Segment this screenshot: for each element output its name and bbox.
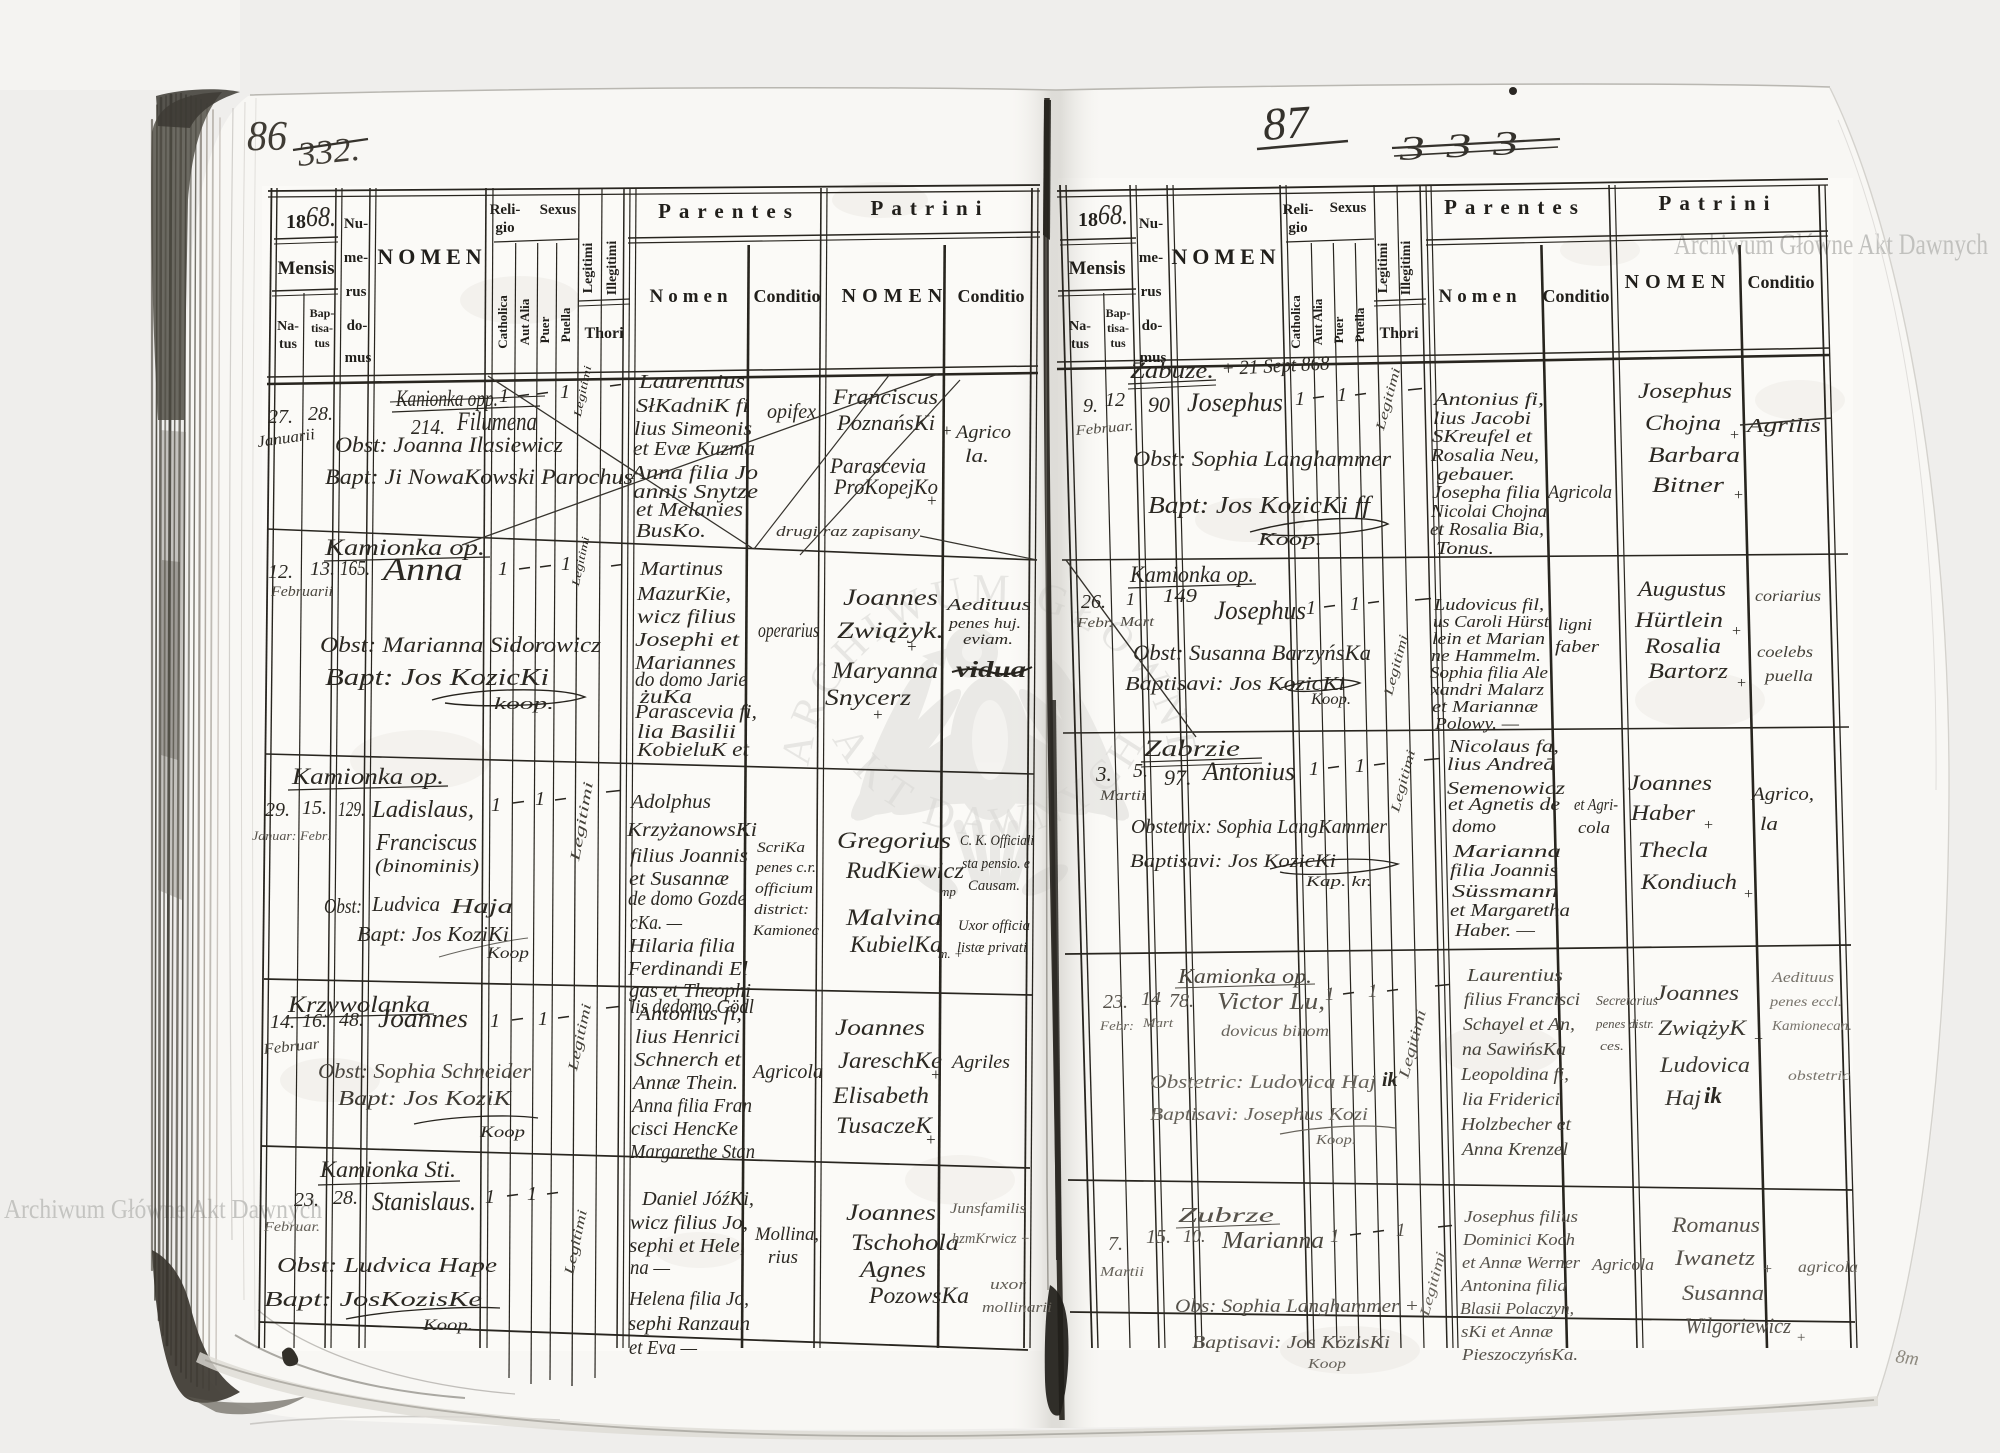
svg-text:Agricola: Agricola [751, 1061, 823, 1083]
svg-text:wicz filius Jo,: wicz filius Jo, [630, 1212, 748, 1234]
svg-text:Thecla: Thecla [1638, 837, 1708, 862]
svg-text:1: 1 [1355, 755, 1365, 777]
svg-text:Koop: Koop [1307, 1357, 1346, 1372]
svg-text:Adolphus: Adolphus [629, 791, 711, 813]
svg-text:KrzyżanowsKi: KrzyżanowsKi [626, 819, 757, 841]
svg-text:Reli-: Reli- [490, 202, 521, 218]
svg-text:domo: domo [1452, 816, 1496, 836]
svg-text:18: 18 [286, 211, 306, 233]
svg-text:Schnerch et: Schnerch et [634, 1049, 742, 1071]
svg-text:Puella: Puella [1352, 307, 1367, 342]
svg-text:ScriKa: ScriKa [757, 840, 805, 856]
svg-text:Puer: Puer [537, 316, 552, 343]
svg-text:+: + [941, 421, 952, 440]
svg-text:Haber. —: Haber. — [1454, 920, 1536, 940]
svg-text:cisci HencKe: cisci HencKe [631, 1118, 738, 1140]
svg-text:ligni: ligni [1558, 615, 1592, 634]
svg-text:Marianna: Marianna [1452, 841, 1562, 861]
svg-text:Antonius fi,: Antonius fi, [635, 1003, 742, 1025]
svg-text:1: 1 [1337, 384, 1347, 406]
svg-text:KobieluK et: KobieluK et [636, 739, 750, 761]
svg-text:lia Friderici: lia Friderici [1462, 1089, 1560, 1109]
svg-text:Antonius: Antonius [1201, 757, 1295, 786]
svg-text:ik: ik [1382, 1069, 1398, 1091]
svg-text:Mollina,: Mollina, [754, 1224, 819, 1245]
svg-text:Bap-: Bap- [1106, 306, 1131, 320]
svg-text:+: + [930, 1065, 941, 1084]
svg-text:Holzbecher et: Holzbecher et [1460, 1114, 1572, 1134]
svg-text:Puella: Puella [558, 307, 573, 342]
svg-text:Illegitimi: Illegitimi [1399, 241, 1414, 296]
svg-text:NOMEN: NOMEN [1171, 244, 1280, 269]
svg-text:Koop.: Koop. [1257, 529, 1322, 549]
svg-text:1: 1 [1330, 1226, 1340, 1247]
svg-text:Aedituus: Aedituus [1771, 970, 1834, 986]
svg-text:penes eccl.: penes eccl. [1769, 995, 1842, 1010]
svg-text:Conditio: Conditio [1542, 286, 1609, 306]
svg-text:Ferdinandi El: Ferdinandi El [627, 958, 749, 980]
svg-text:RudKiewicz: RudKiewicz [845, 858, 964, 883]
svg-text:ik: ik [1704, 1083, 1722, 1108]
svg-text:Patrini: Patrini [871, 196, 990, 220]
svg-text:Dominici Koch: Dominici Koch [1462, 1230, 1575, 1249]
svg-text:Mensis: Mensis [1069, 258, 1126, 279]
svg-text:90: 90 [1148, 392, 1170, 417]
svg-text:Januar: Febr:: Januar: Febr: [252, 828, 332, 843]
svg-text:Bapt: Jos KoziK: Bapt: Jos KoziK [338, 1086, 512, 1110]
svg-text:Thori: Thori [584, 325, 624, 342]
svg-text:Bapt: Jos KoziKi: Bapt: Jos KoziKi [357, 922, 509, 946]
svg-text:Anna filia Fran: Anna filia Fran [630, 1095, 752, 1117]
svg-text:hzmKrwicz +: hzmKrwicz + [952, 1231, 1030, 1247]
svg-text:Daniel JóźKi,: Daniel JóźKi, [641, 1188, 754, 1210]
svg-text:Anna: Anna [381, 552, 463, 588]
svg-text:Parascevia fi,: Parascevia fi, [634, 701, 757, 723]
svg-text:et Rosalia Bia,: et Rosalia Bia, [1430, 519, 1544, 539]
svg-text:Agrico: Agrico [954, 422, 1011, 443]
svg-text:na SawińsKa: na SawińsKa [1462, 1039, 1566, 1059]
svg-text:15.: 15. [1146, 1226, 1171, 1248]
svg-text:Puer: Puer [1331, 316, 1346, 343]
svg-text:PieszoczyńsKa.: PieszoczyńsKa. [1461, 1345, 1578, 1364]
svg-text:Parochus: Parochus [540, 464, 633, 489]
svg-text:Helena filia Jo,: Helena filia Jo, [628, 1288, 749, 1310]
svg-text:Haj: Haj [1664, 1085, 1701, 1110]
svg-text:Obstetric: Ludovica Haj: Obstetric: Ludovica Haj [1150, 1072, 1376, 1093]
svg-text:gio: gio [495, 220, 514, 236]
svg-text:Hürtlein: Hürtlein [1634, 607, 1723, 632]
svg-text:Nomen: Nomen [649, 286, 732, 307]
svg-text:Laurentius: Laurentius [638, 371, 746, 393]
svg-text:Aut Alia: Aut Alia [1310, 298, 1325, 345]
svg-text:coelebs: coelebs [1757, 644, 1813, 661]
svg-text:Kamionka op.: Kamionka op. [1129, 562, 1254, 587]
svg-text:Hilaria filia: Hilaria filia [628, 935, 735, 957]
svg-text:5.: 5. [1133, 760, 1148, 782]
svg-text:rus: rus [346, 284, 367, 300]
svg-text:ces.: ces. [1600, 1038, 1624, 1053]
svg-text:me-: me- [1139, 250, 1163, 266]
svg-text:Annæ Thein.: Annæ Thein. [631, 1072, 738, 1094]
svg-text:Haja: Haja [450, 894, 513, 918]
svg-text:Obst: Ludvica Hape: Obst: Ludvica Hape [277, 1253, 497, 1277]
svg-text:filius Joannis: filius Joannis [630, 845, 748, 867]
svg-text:23.: 23. [1103, 991, 1128, 1013]
svg-text:Baptisavi: Josephus Kozi: Baptisavi: Josephus Kozi [1150, 1104, 1368, 1124]
svg-text:Catholica: Catholica [495, 295, 510, 349]
svg-text:+: + [1736, 675, 1747, 692]
svg-text:9.: 9. [1083, 395, 1098, 417]
svg-text:la: la [1760, 814, 1778, 835]
svg-text:Causam.: Causam. [968, 878, 1020, 894]
svg-text:Obs: Sophia Langhammer +: Obs: Sophia Langhammer + [1175, 1296, 1419, 1317]
svg-text:Kamionka op.: Kamionka op. [291, 764, 444, 789]
svg-text:dovicus binom: dovicus binom [1221, 1023, 1329, 1040]
svg-text:+: + [1703, 817, 1714, 834]
svg-text:Bap-: Bap- [310, 306, 335, 320]
svg-text:Obst: Sophia Langhammer: Obst: Sophia Langhammer [1133, 446, 1391, 471]
svg-text:1: 1 [1325, 984, 1335, 1005]
svg-text:Joannes: Joannes [1628, 770, 1712, 795]
svg-text:Malvina: Malvina [845, 905, 942, 930]
svg-text:Junsfamilis: Junsfamilis [950, 1201, 1026, 1217]
svg-text:MazurKie,: MazurKie, [636, 583, 731, 605]
svg-text:filius Francisci: filius Francisci [1464, 989, 1580, 1009]
svg-text:Elisabeth: Elisabeth [832, 1083, 929, 1108]
svg-text:sKi et Annæ: sKi et Annæ [1461, 1322, 1553, 1341]
svg-text:mus: mus [345, 350, 372, 366]
svg-text:14.: 14. [270, 1011, 295, 1033]
svg-text:Obst: Susanna BarzyńsKa: Obst: Susanna BarzyńsKa [1133, 640, 1371, 665]
svg-text:penes c.r.: penes c.r. [755, 860, 816, 876]
svg-text:Stanislaus.: Stanislaus. [372, 1187, 476, 1216]
svg-text:Kamionecan.: Kamionecan. [1771, 1019, 1852, 1034]
svg-text:NOMEN: NOMEN [1625, 271, 1732, 293]
svg-text:Koop: Koop [486, 945, 529, 962]
svg-text:lius Andreā: lius Andreā [1447, 754, 1555, 774]
svg-text:Polowy. —: Polowy. — [1434, 714, 1520, 733]
svg-text:+: + [926, 491, 937, 510]
svg-text:Josephus filius: Josephus filius [1464, 1207, 1578, 1226]
svg-text:lius Simeonis: lius Simeonis [634, 418, 752, 440]
svg-text:Martii: Martii [1099, 788, 1146, 804]
svg-text:Obstetrix: Sophia LangKammer: Obstetrix: Sophia LangKammer [1131, 816, 1387, 838]
svg-text:86: 86 [247, 114, 287, 160]
svg-text:Joannes: Joannes [378, 1004, 468, 1033]
svg-text:do-: do- [347, 318, 368, 334]
svg-text:NOMEN: NOMEN [377, 244, 486, 269]
svg-text:15.: 15. [302, 797, 327, 819]
svg-text:koop.: koop. [494, 694, 554, 713]
svg-text:Februarii: Februarii [270, 584, 333, 600]
svg-text:Kondiuch: Kondiuch [1640, 869, 1737, 894]
svg-text:Nomen: Nomen [1438, 286, 1521, 307]
svg-text:penes huj.: penes huj. [948, 616, 1021, 632]
svg-text:KubielKa: KubielKa [849, 932, 942, 957]
svg-text:12.: 12. [268, 561, 293, 583]
svg-text:mollinarii: mollinarii [982, 1300, 1052, 1316]
svg-text:14: 14 [1141, 988, 1161, 1010]
svg-text:87: 87 [1261, 96, 1312, 150]
svg-text:7.: 7. [1108, 1233, 1123, 1255]
svg-text:tus: tus [1071, 337, 1089, 352]
svg-text:68.: 68. [306, 202, 336, 233]
svg-text:Barbara: Barbara [1648, 442, 1740, 467]
svg-text:Wilgoriewicz: Wilgoriewicz [1685, 1313, 1791, 1338]
svg-text:filia Joannis: filia Joannis [1450, 860, 1558, 880]
svg-text:cKa. —: cKa. — [630, 912, 682, 934]
svg-text:(binominis): (binominis) [375, 856, 479, 877]
svg-text:coriarius: coriarius [1755, 588, 1821, 605]
svg-text:Tschohola: Tschohola [851, 1230, 959, 1255]
svg-text:Snycerz: Snycerz [825, 685, 911, 710]
svg-text:3.: 3. [1095, 762, 1112, 786]
svg-text:penes distr.: penes distr. [1595, 1016, 1654, 1031]
svg-text:Agrilis: Agrilis [1744, 415, 1821, 437]
svg-text:Zubrze: Zubrze [1178, 1203, 1274, 1227]
svg-text:lius Henrici: lius Henrici [635, 1026, 740, 1048]
svg-text:Rosalia: Rosalia [1644, 633, 1721, 658]
svg-text:1: 1 [1306, 597, 1316, 619]
svg-text:Joannes: Joannes [1655, 980, 1739, 1005]
svg-text:tisa-: tisa- [1107, 321, 1129, 335]
svg-text:Agricola: Agricola [1546, 482, 1612, 503]
svg-text:et Agri-: et Agri- [1574, 795, 1618, 814]
svg-text:TusaczeK: TusaczeK [836, 1113, 934, 1138]
svg-text:78.: 78. [1169, 990, 1194, 1012]
svg-text:Koop.: Koop. [1310, 691, 1351, 708]
svg-text:129.: 129. [338, 797, 365, 821]
svg-text:Antonina filia: Antonina filia [1460, 1276, 1567, 1295]
svg-text:Joannes: Joannes [843, 585, 938, 610]
svg-text:listæ privati: listæ privati [957, 940, 1027, 956]
svg-text:+: + [906, 637, 917, 656]
svg-text:JareschKe: JareschKe [838, 1048, 942, 1073]
svg-text:1: 1 [527, 1183, 537, 1205]
svg-text:Agricola: Agricola [1591, 1255, 1654, 1274]
svg-text:officium: officium [755, 881, 813, 897]
svg-text:SłKadniK fi: SłKadniK fi [636, 395, 749, 417]
svg-text:Ladislaus,: Ladislaus, [371, 797, 474, 823]
svg-text:Iwanetz: Iwanetz [1674, 1245, 1756, 1270]
svg-text:Bartorz: Bartorz [1648, 658, 1729, 683]
svg-text:Martii: Martii [1099, 1265, 1144, 1280]
svg-text:Catholica: Catholica [1288, 295, 1303, 349]
svg-text:agricola: agricola [1798, 1259, 1858, 1276]
svg-text:Uxor officia: Uxor officia [958, 918, 1030, 934]
svg-text:Conditio: Conditio [1747, 272, 1814, 292]
svg-text:Baptisavi: Jos KözisKi: Baptisavi: Jos KözisKi [1192, 1332, 1390, 1352]
svg-text:Bitner: Bitner [1652, 472, 1725, 497]
svg-text:Franciscus: Franciscus [375, 830, 477, 856]
svg-text:Tonus.: Tonus. [1436, 538, 1494, 558]
svg-text:C. K. Officiali: C. K. Officiali [960, 833, 1034, 849]
svg-text:Nicolai Chojna: Nicolai Chojna [1430, 501, 1547, 521]
svg-text:Rosalia Neu,: Rosalia Neu, [1430, 445, 1539, 465]
svg-text:149: 149 [1163, 585, 1197, 607]
svg-text:Marianna: Marianna [1221, 1228, 1324, 1254]
svg-text:Febr:: Febr: [1099, 1018, 1134, 1033]
svg-text:Anna Krenzel: Anna Krenzel [1461, 1139, 1568, 1159]
svg-text:Patrini: Patrini [1659, 191, 1778, 215]
svg-text:Thori: Thori [1379, 325, 1419, 342]
svg-text:me-: me- [344, 250, 368, 266]
svg-text:PoznańsKi: PoznańsKi [836, 410, 935, 435]
svg-text:Koop.: Koop. [1315, 1133, 1356, 1148]
svg-text:Franciscus: Franciscus [832, 384, 938, 409]
svg-text:et Evæ Kuzma: et Evæ Kuzma [633, 438, 755, 460]
svg-text:1: 1 [1350, 593, 1360, 615]
svg-text:eviam.: eviam. [963, 632, 1013, 648]
svg-text:Na-: Na- [277, 319, 299, 334]
svg-text:Blasii Polaczyn,: Blasii Polaczyn, [1460, 1299, 1574, 1318]
svg-text:+: + [872, 705, 883, 724]
svg-text:+: + [1753, 1031, 1764, 1048]
svg-text:Laurentius: Laurentius [1466, 965, 1563, 985]
svg-text:de domo Gozde: de domo Gozde [628, 888, 746, 910]
svg-text:NOMEN: NOMEN [842, 285, 949, 307]
svg-text:et Agnetis de: et Agnetis de [1448, 794, 1560, 814]
svg-text:gebauer.: gebauer. [1437, 464, 1515, 484]
svg-text:1: 1 [1396, 1220, 1406, 1241]
svg-text:97.: 97. [1164, 765, 1192, 790]
svg-text:Sexus: Sexus [1330, 200, 1367, 216]
svg-text:obstetric: obstetric [1788, 1069, 1851, 1084]
svg-text:Chojna: Chojna [1645, 410, 1721, 435]
svg-text:Illegitimi: Illegitimi [605, 241, 620, 296]
svg-text:Koop: Koop [479, 1124, 525, 1141]
svg-text:uxor: uxor [990, 1277, 1026, 1293]
svg-text:+: + [1796, 1330, 1806, 1346]
svg-text:1: 1 [1126, 589, 1135, 609]
svg-text:1: 1 [1295, 388, 1305, 410]
svg-text:Koop.: Koop. [422, 1317, 473, 1334]
svg-text:Conditio: Conditio [957, 286, 1024, 306]
svg-text:et Margaretha: et Margaretha [1450, 900, 1570, 920]
svg-text:rius: rius [768, 1247, 798, 1268]
svg-text:puella: puella [1764, 668, 1813, 685]
svg-text:Augustus: Augustus [1636, 576, 1726, 601]
svg-text:1: 1 [491, 794, 501, 816]
svg-text:Margarethe Stan: Margarethe Stan [629, 1141, 755, 1163]
svg-text:rus: rus [1141, 284, 1162, 300]
svg-text:cola: cola [1578, 818, 1610, 837]
svg-text:Bapt: Jos KozicKi: Bapt: Jos KozicKi [325, 665, 549, 691]
svg-text:48.: 48. [339, 1009, 364, 1031]
svg-text:29.: 29. [265, 799, 290, 821]
svg-text:165.: 165. [340, 556, 370, 580]
svg-text:10.: 10. [1183, 1226, 1206, 1246]
svg-text:Legitimi: Legitimi [1376, 243, 1391, 294]
svg-text:Sexus: Sexus [540, 202, 577, 218]
svg-text:Aut Alia: Aut Alia [517, 298, 532, 345]
svg-text:1: 1 [538, 1008, 548, 1030]
svg-text:Reli-: Reli- [1283, 202, 1314, 218]
svg-text:ZwiążyK: ZwiążyK [1658, 1015, 1748, 1040]
svg-text:PozowsKa: PozowsKa [868, 1283, 969, 1308]
svg-text:et Susannæ: et Susannæ [629, 868, 729, 890]
svg-text:1: 1 [1368, 981, 1378, 1002]
svg-text:Mensis: Mensis [278, 258, 335, 279]
svg-text:faber: faber [1555, 637, 1599, 656]
svg-text:Na-: Na- [1069, 319, 1091, 334]
svg-text:sephi et Hele,: sephi et Hele, [629, 1235, 745, 1257]
svg-text:Nicolaus fa,: Nicolaus fa, [1448, 736, 1559, 756]
svg-text:Ludovica: Ludovica [1659, 1052, 1750, 1077]
svg-text:Secretarius: Secretarius [1596, 994, 1659, 1009]
svg-text:+: + [1731, 623, 1742, 640]
svg-text:Agriles: Agriles [950, 1052, 1010, 1073]
svg-text:Obst:: Obst: [324, 894, 362, 918]
svg-text:tus: tus [1110, 336, 1126, 350]
svg-text:et Eva —: et Eva — [629, 1337, 697, 1359]
svg-text:Zabuze.: Zabuze. [1130, 358, 1214, 383]
svg-text:1: 1 [560, 381, 570, 403]
svg-text:mp: mp [940, 884, 956, 899]
svg-text:drugi raz zapisany: drugi raz zapisany [776, 524, 920, 540]
svg-text:Parentes: Parentes [1444, 195, 1586, 219]
svg-text:do-: do- [1142, 318, 1163, 334]
svg-text:gio: gio [1288, 220, 1307, 236]
svg-text:tus: tus [279, 337, 297, 352]
svg-text:1: 1 [485, 1186, 495, 1208]
svg-text:1: 1 [498, 558, 508, 580]
svg-text:Josephus: Josephus [1214, 596, 1306, 625]
svg-text:et Melanies: et Melanies [636, 499, 743, 521]
svg-text:Nu-: Nu- [1139, 216, 1163, 232]
svg-text:Conditio: Conditio [753, 286, 820, 306]
svg-text:district:: district: [754, 902, 809, 918]
svg-text:Josepha filia: Josepha filia [1432, 482, 1540, 502]
svg-text:Gregorius: Gregorius [837, 828, 951, 853]
svg-text:lius Jacobi: lius Jacobi [1433, 408, 1531, 428]
svg-text:BusKo.: BusKo. [636, 520, 706, 542]
svg-text:Susanna: Susanna [1682, 1280, 1764, 1305]
svg-text:Romanus: Romanus [1671, 1212, 1760, 1237]
svg-text:1: 1 [535, 788, 545, 810]
svg-text:Februar.: Februar. [263, 1220, 320, 1235]
svg-text:332.: 332. [295, 131, 362, 174]
svg-text:Obst: Joanna Ilasiewicz: Obst: Joanna Ilasiewicz [335, 432, 563, 457]
svg-text:Schayel et An,: Schayel et An, [1463, 1014, 1575, 1034]
svg-text:Legitimi: Legitimi [581, 243, 596, 294]
svg-text:na —: na — [630, 1257, 670, 1279]
svg-text:Mart: Mart [1142, 1015, 1174, 1030]
svg-text:Maryanna: Maryanna [831, 658, 938, 683]
svg-text:+: + [1762, 1261, 1773, 1278]
svg-text:ProKopejKo: ProKopejKo [833, 474, 938, 499]
svg-text:la.: la. [965, 446, 989, 467]
svg-text:Kamionec: Kamionec [752, 923, 819, 939]
svg-text:1: 1 [1309, 758, 1319, 780]
svg-text:Zwiążyk.: Zwiążyk. [837, 618, 944, 643]
svg-text:Josephus: Josephus [1187, 388, 1283, 417]
svg-text:Bapt: Jos KozicKi ff: Bapt: Jos KozicKi ff [1148, 493, 1374, 519]
svg-text:Joannes: Joannes [846, 1200, 936, 1225]
svg-text:SKreufel et: SKreufel et [1432, 426, 1533, 446]
svg-text:Ludvica: Ludvica [371, 892, 440, 916]
svg-text:Josephi et: Josephi et [635, 629, 740, 651]
svg-text:Kap. kr.: Kap. kr. [1305, 874, 1372, 890]
svg-text:Obst: Sophia Schneider: Obst: Sophia Schneider [318, 1059, 532, 1083]
svg-text:Kamionka Sti.: Kamionka Sti. [319, 1157, 456, 1182]
svg-text:Mart: Mart [1119, 615, 1156, 630]
svg-text:8m: 8m [1894, 1346, 1920, 1370]
svg-text:16.: 16. [302, 1010, 327, 1032]
svg-text:+: + [1743, 886, 1754, 903]
svg-text:sta pensio. e: sta pensio. e [962, 856, 1030, 872]
svg-text:Josephus: Josephus [1638, 378, 1732, 403]
